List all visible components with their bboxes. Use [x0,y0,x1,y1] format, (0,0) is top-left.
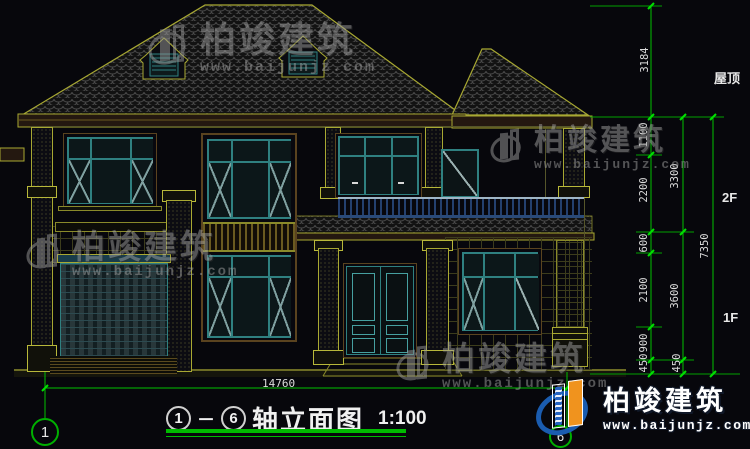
window-pane [92,160,130,203]
porch-column-left [318,248,339,354]
title-axis-end-bubble: 6 [221,406,246,431]
watermark-brand: 柏竣建筑 [200,22,376,58]
window-pane-x [132,160,153,203]
dimension-extension-lines [590,6,740,374]
door-panel [386,325,409,335]
window-pane-x [209,278,231,336]
door-pane [340,157,364,194]
watermark-left: 柏竣建筑 www.baijunjz.com [26,230,238,279]
porch-column-right [426,248,449,354]
window-sill [58,206,162,211]
door-handle [352,182,358,184]
balcony-railing [338,197,584,218]
window-pane [92,139,130,158]
window-pane-x [69,160,90,203]
watermark-url: www.baijunjz.com [200,60,376,75]
door-pane [366,138,390,155]
level-label-2f: 2F [722,190,737,205]
door-panel [352,273,375,321]
door-handle [398,182,404,184]
title-scale: 1:100 [378,408,427,430]
window-1f-right [458,248,542,335]
dim-total-width: 14760 [262,377,295,390]
brand-logo-icon [535,378,597,442]
window-pane [270,141,292,161]
title-separator: － [197,406,215,432]
window-pane-x [209,163,231,218]
base-trim-line [553,333,587,334]
axis-number: 1 [41,424,49,441]
window-pane [132,139,153,158]
axis-bubble-1: 1 [31,418,59,446]
title-underline-thin [166,436,406,437]
title-underline-thick [166,429,406,433]
window-pane-x [270,278,292,336]
brand-logo: 柏竣建筑 www.baijunjz.com [535,378,750,442]
title-axis-start: 1 [174,410,182,427]
watermark-right: 柏竣建筑 www.baijunjz.com [490,126,691,171]
window-pane-x [464,278,483,330]
door-pane [366,157,390,194]
door-panel [352,325,375,335]
dim-2200: 2200 [638,172,650,208]
pilaster-capital [27,186,57,198]
title-axis-start-bubble: 1 [166,406,191,431]
pent-roof-tiles [296,216,592,234]
door-leaf-left [347,267,381,354]
door-swing-line [443,151,477,196]
title-axis-end: 6 [229,410,237,427]
porch-column-base [313,350,344,365]
door-pane [340,138,364,155]
window-2f-left [63,133,157,208]
right-roof [452,49,588,115]
watermark-brand: 柏竣建筑 [534,126,691,156]
window-pane [270,257,292,276]
door-panel [386,273,409,321]
balcony-door-2f [335,133,422,198]
pilaster-garage-right [166,200,192,372]
window-pane [485,278,514,330]
dim-total-height: 7350 [699,228,711,264]
level-label-roof: 屋顶 [714,68,740,87]
driveway-ramp [50,356,177,374]
watermark-logo-icon [26,234,64,276]
window-pane [233,278,268,336]
window-pane [233,163,268,218]
cad-elevation-drawing: 3184 1100 2200 3300 600 2100 3600 900 45… [0,0,750,449]
corner-column-right-1f [556,240,584,328]
window-pane [233,141,268,161]
door-panel [352,338,375,353]
left-canopy-edge [0,148,24,161]
watermark-url: www.baijunjz.com [72,265,238,279]
dim-2100: 2100 [638,272,650,308]
door-pane [393,157,417,194]
brand-logo-name: 柏竣建筑 [603,388,750,415]
door-2f-right [441,149,479,198]
door-leaf-right [381,267,414,354]
watermark-top: 柏竣建筑 www.baijunjz.com [148,22,376,75]
window-pane [209,141,231,161]
watermark-brand: 柏竣建筑 [442,342,608,375]
dim-450-middle: 450 [671,345,683,381]
dim-roof-height: 3184 [639,42,651,78]
watermark-logo-icon [396,346,434,388]
dim-3600: 3600 [669,278,681,314]
window-pane [485,254,514,276]
door-pane [393,138,417,155]
window-pane [69,139,90,158]
stair-window-upper [207,139,291,219]
window-pane-x [270,163,292,218]
watermark-brand: 柏竣建筑 [72,230,238,263]
dim-600: 600 [638,225,650,261]
watermark-logo-icon [148,25,192,73]
watermark-logo-icon [490,129,526,169]
window-pane [516,254,538,276]
watermark-url: www.baijunjz.com [534,158,691,171]
brand-logo-url: www.baijunjz.com [603,419,750,432]
window-pane-diag [516,278,538,330]
dim-450-inner: 450 [638,345,650,381]
window-pane [464,254,483,276]
level-label-1f: 1F [723,310,738,325]
